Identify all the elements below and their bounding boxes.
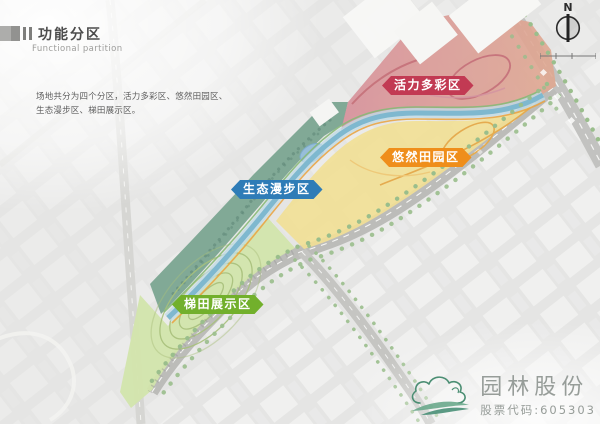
compass-north-label: N: [540, 2, 596, 13]
site-plan-map: [0, 0, 600, 424]
north-arrow-icon: [540, 13, 596, 45]
title-decoration-bar-2: [29, 27, 32, 40]
title-block: 功能分区 Functional partition: [0, 25, 123, 54]
description-line-1: 场地共分为四个分区，活力多彩区、悠然田园区、: [36, 92, 227, 102]
company-name: 园林股份: [480, 376, 596, 400]
zone-label-pastoral: 悠然田园区: [380, 148, 472, 167]
zone-label-terrace-text: 梯田展示区: [184, 297, 252, 311]
zone-label-terrace: 梯田展示区: [172, 295, 264, 314]
description-text: 场地共分为四个分区，活力多彩区、悠然田园区、 生态漫步区、梯田展示区。: [36, 90, 246, 119]
zone-label-eco-stroll-text: 生态漫步区: [243, 182, 311, 196]
zone-label-vitality-text: 活力多彩区: [394, 78, 462, 92]
stock-code: 股票代码:605303: [480, 402, 596, 418]
company-logo: 园林股份 股票代码:605303: [408, 370, 596, 418]
scale-bar: [540, 52, 596, 64]
cloud-tree-logo-icon: [408, 370, 472, 418]
description-line-2: 生态漫步区、梯田展示区。: [36, 106, 140, 116]
zone-label-pastoral-text: 悠然田园区: [392, 150, 460, 164]
page-title: 功能分区: [38, 24, 102, 44]
zone-label-eco-stroll: 生态漫步区: [231, 180, 323, 199]
title-decoration-block-2: [11, 26, 20, 41]
title-decoration-block: [0, 26, 11, 41]
slide: 功能分区 Functional partition 场地共分为四个分区，活力多彩…: [0, 0, 600, 424]
compass: N: [540, 2, 596, 68]
title-decoration-bar: [23, 27, 26, 40]
page-subtitle: Functional partition: [32, 44, 123, 54]
zone-label-vitality: 活力多彩区: [382, 76, 474, 95]
